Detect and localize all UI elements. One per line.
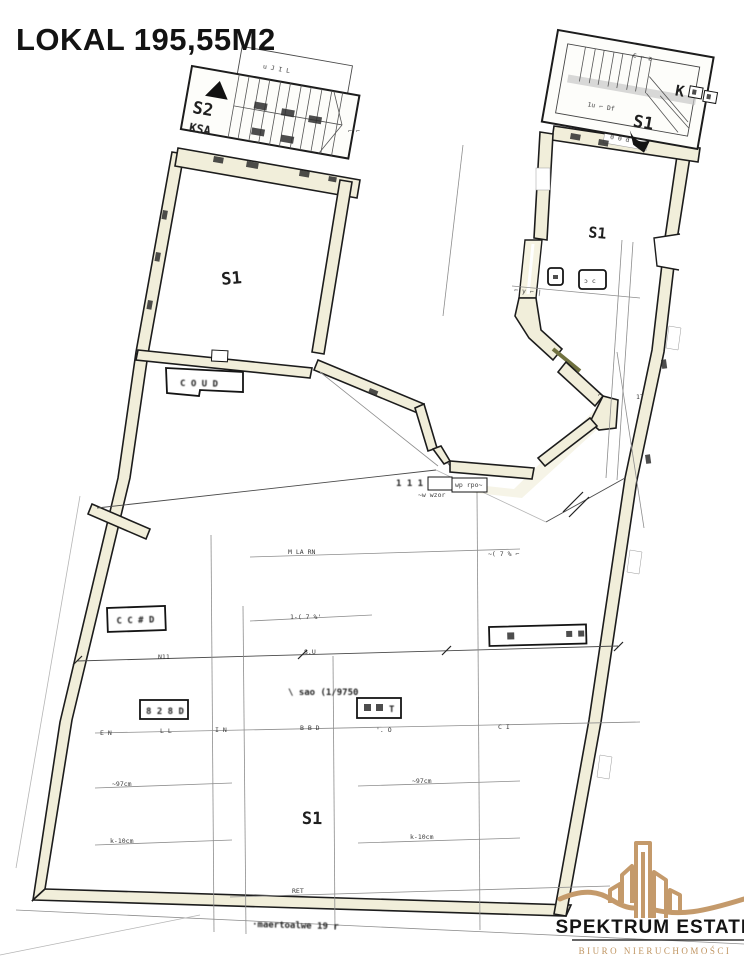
room-bottom-label: S1 xyxy=(302,809,323,829)
svg-text:k-10cm: k-10cm xyxy=(410,833,434,841)
annotation: ⌐ ⌐ xyxy=(348,127,360,135)
annotation: 17 xyxy=(636,393,644,401)
svg-text:ɔ c: ɔ c xyxy=(584,277,596,285)
window-gap xyxy=(666,326,681,350)
svg-text:1-( 7 %': 1-( 7 %' xyxy=(290,613,321,621)
window-gap xyxy=(627,550,642,574)
floor-plan: 0 0 d u J I L S2 KSA ⌐ ⌐ xyxy=(0,0,744,960)
svg-text:C I: C I xyxy=(498,723,510,731)
svg-text:L L: L L xyxy=(160,727,172,735)
svg-text:I N: I N xyxy=(215,726,227,734)
svg-text:N11: N11 xyxy=(158,653,170,661)
svg-text:~97cm: ~97cm xyxy=(412,777,432,785)
svg-text:~w wzor: ~w wzor xyxy=(418,491,445,499)
svg-text:E N: E N xyxy=(100,729,112,737)
svg-text:M LA RN: M LA RN xyxy=(288,548,315,556)
page-title: LOKAL 195,55M2 xyxy=(16,22,276,58)
logo-subtitle: BIURO NIERUCHOMOŚCI xyxy=(579,946,732,956)
svg-text:8.U: 8.U xyxy=(304,648,316,656)
annotation: ⌐ xyxy=(598,391,602,399)
svg-text:RET: RET xyxy=(292,887,304,895)
coud-box-label: C O U D xyxy=(180,379,219,390)
svg-text:k-10cm: k-10cm xyxy=(110,837,134,845)
street-label: ·maertoalwe 19 r xyxy=(252,920,340,932)
wall-marks xyxy=(146,133,667,464)
logo: SPEKTRUM ESTATE BIURO NIERUCHOMOŚCI xyxy=(555,843,744,956)
dimension-lines: ⌐ y ⌐ | ⌐ 17 xyxy=(73,240,644,934)
svg-text:B B D: B B D xyxy=(300,724,320,732)
svg-text:~( 7 % ⌐: ~( 7 % ⌐ xyxy=(488,550,519,558)
stair-left-sublabel: KSA xyxy=(188,121,213,139)
window-gap xyxy=(597,755,612,779)
logo-name: SPEKTRUM ESTATE xyxy=(555,917,744,938)
annotation-boxes: C O U D C C # D 8 2 8 D T wp rpo~ xyxy=(107,350,586,719)
left-room-walls xyxy=(136,148,450,466)
annotation: ⌐ y ⌐ | xyxy=(514,286,542,297)
stair-left-label: S2 xyxy=(191,98,215,121)
svg-text:\ sao (1/9750: \ sao (1/9750 xyxy=(288,688,358,698)
stair-right-label: S1 xyxy=(632,112,656,135)
annotation: u J I L xyxy=(262,62,290,75)
door-gap xyxy=(536,168,550,190)
dim-box-label: wp rpo~ xyxy=(455,481,482,489)
right-room-boxes: ɔ c xyxy=(548,268,606,289)
lower-box-label: 8 2 8 D xyxy=(146,707,185,717)
room-right-label: S1 xyxy=(588,223,608,243)
svg-text:~97cm: ~97cm xyxy=(112,780,132,788)
squares-box-label: T xyxy=(389,705,395,715)
room-left-label: S1 xyxy=(220,268,242,290)
right-wall-notch xyxy=(654,234,680,270)
left-box-label: C C # D xyxy=(116,615,155,626)
svg-text:'. O: '. O xyxy=(376,726,392,734)
